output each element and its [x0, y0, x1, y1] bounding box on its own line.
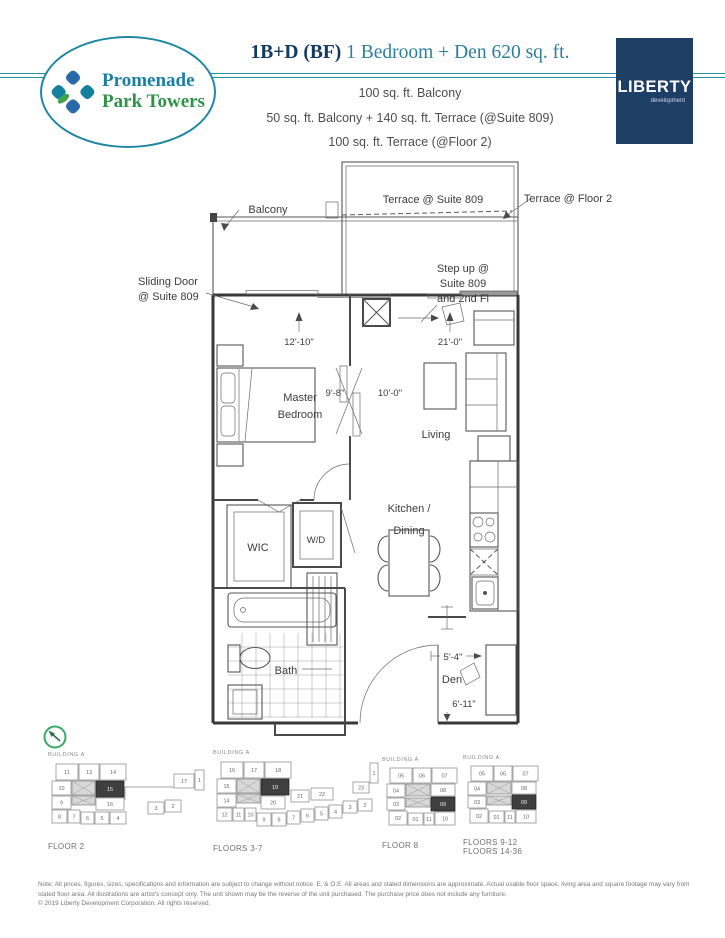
keyplan-unit-number: 1 — [198, 778, 201, 784]
terrace-outline: Terrace @ Suite 809 — [342, 162, 518, 295]
balcony-label: Balcony — [248, 204, 288, 216]
keyplan-floor-label: FLOOR 2 — [48, 842, 206, 851]
keyplan-unit-number: 03 — [474, 800, 480, 806]
keyplan-unit-number: 8 — [277, 818, 280, 824]
keyplan-unit-number: 10 — [58, 786, 64, 792]
bath-label: Bath — [275, 665, 298, 677]
keyplan-floor-label: FLOORS 9-12 — [463, 838, 558, 847]
keyplan-unit-number: 5 — [320, 812, 323, 818]
liberty-name: LIBERTY — [616, 78, 693, 97]
svg-text:21'-0": 21'-0" — [438, 337, 462, 348]
kitchen-label-1: Kitchen / — [388, 503, 432, 515]
keyplan-unit-number: 06 — [419, 774, 425, 780]
keyplan-unit-number: 23 — [358, 786, 364, 792]
keyplan-unit-number: 19 — [272, 785, 278, 791]
keyplan-unit-number: 16 — [229, 768, 235, 774]
promenade-diamond-icon — [51, 69, 95, 115]
kitchen — [470, 461, 518, 611]
dim-living-width: 21'-0" — [438, 312, 462, 348]
kitchen-label-2: Dining — [393, 525, 424, 537]
dining-table — [378, 530, 440, 596]
north-compass-icon — [42, 724, 68, 750]
promenade-logo-text: Promenade Park Towers — [102, 71, 205, 112]
dim-bedroom-width: 12'-10" — [284, 312, 313, 348]
keyplan-unit-number: 21 — [297, 794, 303, 800]
terrace-suite-label: Terrace @ Suite 809 — [383, 194, 483, 206]
keyplan-building-label: BUILDING A — [213, 750, 379, 756]
keyplan-unit-number: 04 — [474, 787, 480, 793]
keyplan-unit-number: 03 — [393, 802, 399, 808]
keyplan-unit-number: 3 — [154, 806, 157, 812]
keyplan-unit-number: 20 — [270, 801, 276, 807]
keyplan-unit-number: 10 — [523, 815, 529, 821]
floor-plan: Terrace @ Suite 809 Balcony Terrace @ Fl… — [0, 155, 725, 747]
living-label: Living — [422, 429, 451, 441]
wic-label: WIC — [247, 542, 268, 554]
keyplan-graphic: 16171815191420121110987654322122231 — [213, 758, 379, 841]
unit-title: 1B+D (BF) 1 Bedroom + Den 620 sq. ft. — [200, 42, 620, 64]
keyplan-unit-number: 11 — [64, 770, 70, 776]
keyplan-unit-number: 14 — [110, 770, 116, 776]
keyplan-unit-number: 10 — [247, 813, 253, 819]
keyplan-unit-number: 7 — [292, 816, 295, 822]
keyplan-svg: 16171815191420121110987654322122231 — [213, 758, 379, 836]
column — [363, 299, 390, 326]
logo-line1: Promenade — [102, 71, 205, 92]
keyplan-unit-number: 01 — [493, 815, 499, 821]
keyplan-unit-number: 1 — [372, 771, 375, 777]
step-up-label-3: and 2nd Fl — [437, 293, 489, 305]
keyplan-unit-number: 05 — [479, 772, 485, 778]
dim-den-depth: 6'-11" — [452, 699, 476, 710]
step-up-label-1: Step up @ — [437, 263, 489, 275]
unit-description: 1 Bedroom + Den 620 sq. ft. — [346, 42, 569, 63]
keyplan-floors-3-7: BUILDING A 16171815191420121110987654322… — [213, 750, 379, 853]
terrace-floor2-label-group: Terrace @ Floor 2 — [503, 193, 612, 219]
keyplan-unit-number: 4 — [116, 816, 119, 822]
keyplan-unit-number: 18 — [275, 768, 281, 774]
liberty-tagline: development — [616, 98, 693, 104]
keyplan-unit-number: 11 — [426, 817, 432, 823]
keyplan-unit-number: 02 — [395, 816, 401, 822]
unit-code: 1B+D (BF) — [251, 42, 342, 63]
keyplan-unit-number: 8 — [58, 815, 61, 821]
entry-door — [360, 645, 438, 723]
legal-note: Note: All prices, figures, sizes, specif… — [38, 880, 690, 909]
liberty-logo: LIBERTY development — [616, 38, 693, 144]
keyplan-floor-label-2: FLOORS 14-36 — [463, 847, 558, 856]
keyplan-unit-number: 08 — [440, 788, 446, 794]
keyplan-svg: 11131410159168765432171 — [48, 760, 206, 834]
logo-line2: Park Towers — [102, 92, 205, 113]
keyplan-unit-number: 04 — [393, 789, 399, 795]
keyplan-unit-number: 06 — [500, 772, 506, 778]
keyplan-unit-number: 9 — [262, 818, 265, 824]
area-line-2: 50 sq. ft. Balcony + 140 sq. ft. Terrace… — [180, 111, 640, 125]
note-text: Note: All prices, figures, sizes, specif… — [38, 880, 690, 899]
unit-walls — [213, 295, 518, 735]
keyplan-unit-number: 17 — [251, 768, 257, 774]
wd-label: W/D — [307, 535, 326, 546]
keyplan-floor-label: FLOORS 3-7 — [213, 844, 379, 853]
keyplan-unit-number: 16 — [107, 802, 113, 808]
keyplan-building-label: BUILDING A — [463, 755, 558, 761]
master-bedroom-label-2: Bedroom — [278, 409, 323, 421]
master-bedroom-label-1: Master — [283, 392, 317, 404]
keyplan-floors-9-36: BUILDING A 0506070408030902011110 FLOORS… — [463, 755, 558, 856]
keyplan-unit-number: 01 — [412, 817, 418, 823]
keyplan-unit-number: 10 — [442, 817, 448, 823]
keyplan-unit-number: 2 — [363, 803, 366, 809]
keyplan-unit-number: 07 — [441, 774, 447, 780]
keyplan-building-label: BUILDING A — [48, 752, 206, 758]
dim-bedroom-depth: 9'-8" — [326, 388, 345, 399]
keyplan-unit-number: 12 — [221, 813, 227, 819]
bed — [217, 345, 315, 466]
keyplan-unit-number: 4 — [334, 810, 337, 816]
keyplan-unit-number: 13 — [86, 770, 92, 776]
copyright-text: © 2019 Liberty Development Corporation. … — [38, 899, 690, 909]
step-up-label-2: Suite 809 — [440, 278, 486, 290]
keyplan-graphic: 11131410159168765432171 — [48, 760, 206, 839]
keyplan-unit-number: 07 — [522, 772, 528, 778]
keyplan-floor-2: BUILDING A 11131410159168765432171 FLOOR… — [48, 752, 206, 851]
keyplan-unit-number: 3 — [348, 805, 351, 811]
keyplan-unit-number: 2 — [171, 804, 174, 810]
dim-living-depth: 10'-0" — [378, 388, 402, 399]
area-line-1: 100 sq. ft. Balcony — [180, 86, 640, 100]
keyplan-unit-number: 11 — [236, 813, 242, 819]
keyplan-svg: 0506070408030902011110 — [463, 763, 558, 831]
keyplan-unit-number: 6 — [306, 814, 309, 820]
keyplan-unit-number: 5 — [100, 816, 103, 822]
sliding-door-label-2: @ Suite 809 — [138, 291, 199, 303]
sliding-door-label-group: Sliding Door @ Suite 809 — [138, 276, 259, 310]
floorplan-sheet: Promenade Park Towers 1B+D (BF) 1 Bedroo… — [0, 0, 725, 938]
keyplan-unit-number: 02 — [476, 814, 482, 820]
keyplan-unit-number: 22 — [319, 792, 325, 798]
keyplan-unit-number: 7 — [72, 815, 75, 821]
keyplan-graphic: 0506070408030902011110 — [463, 763, 558, 836]
keyplan-unit-number: 15 — [223, 784, 229, 790]
keyplan-unit-number: 9 — [60, 801, 63, 807]
keyplan-unit-number: 17 — [181, 779, 187, 785]
area-summary: 100 sq. ft. Balcony 50 sq. ft. Balcony +… — [180, 86, 640, 160]
keyplan-unit-number: 14 — [223, 799, 229, 805]
keyplan-unit-number: 11 — [507, 815, 513, 821]
area-line-3: 100 sq. ft. Terrace (@Floor 2) — [180, 135, 640, 149]
keyplan-unit-number: 08 — [521, 786, 527, 792]
keyplan-unit-number: 6 — [86, 816, 89, 822]
den-label: Den — [442, 674, 462, 686]
keyplan-unit-number: 09 — [521, 800, 527, 806]
promenade-logo: Promenade Park Towers — [40, 36, 216, 148]
sliding-door-label-1: Sliding Door — [138, 276, 198, 288]
svg-text:12'-10": 12'-10" — [284, 337, 313, 348]
keyplan-unit-number: 09 — [440, 802, 446, 808]
keyplan-unit-number: 05 — [398, 774, 404, 780]
linen-closet — [307, 573, 337, 645]
terrace-floor2-label: Terrace @ Floor 2 — [524, 193, 612, 205]
keyplan-unit-number: 15 — [107, 787, 113, 793]
dim-den-width: 5'-4" — [444, 652, 463, 663]
